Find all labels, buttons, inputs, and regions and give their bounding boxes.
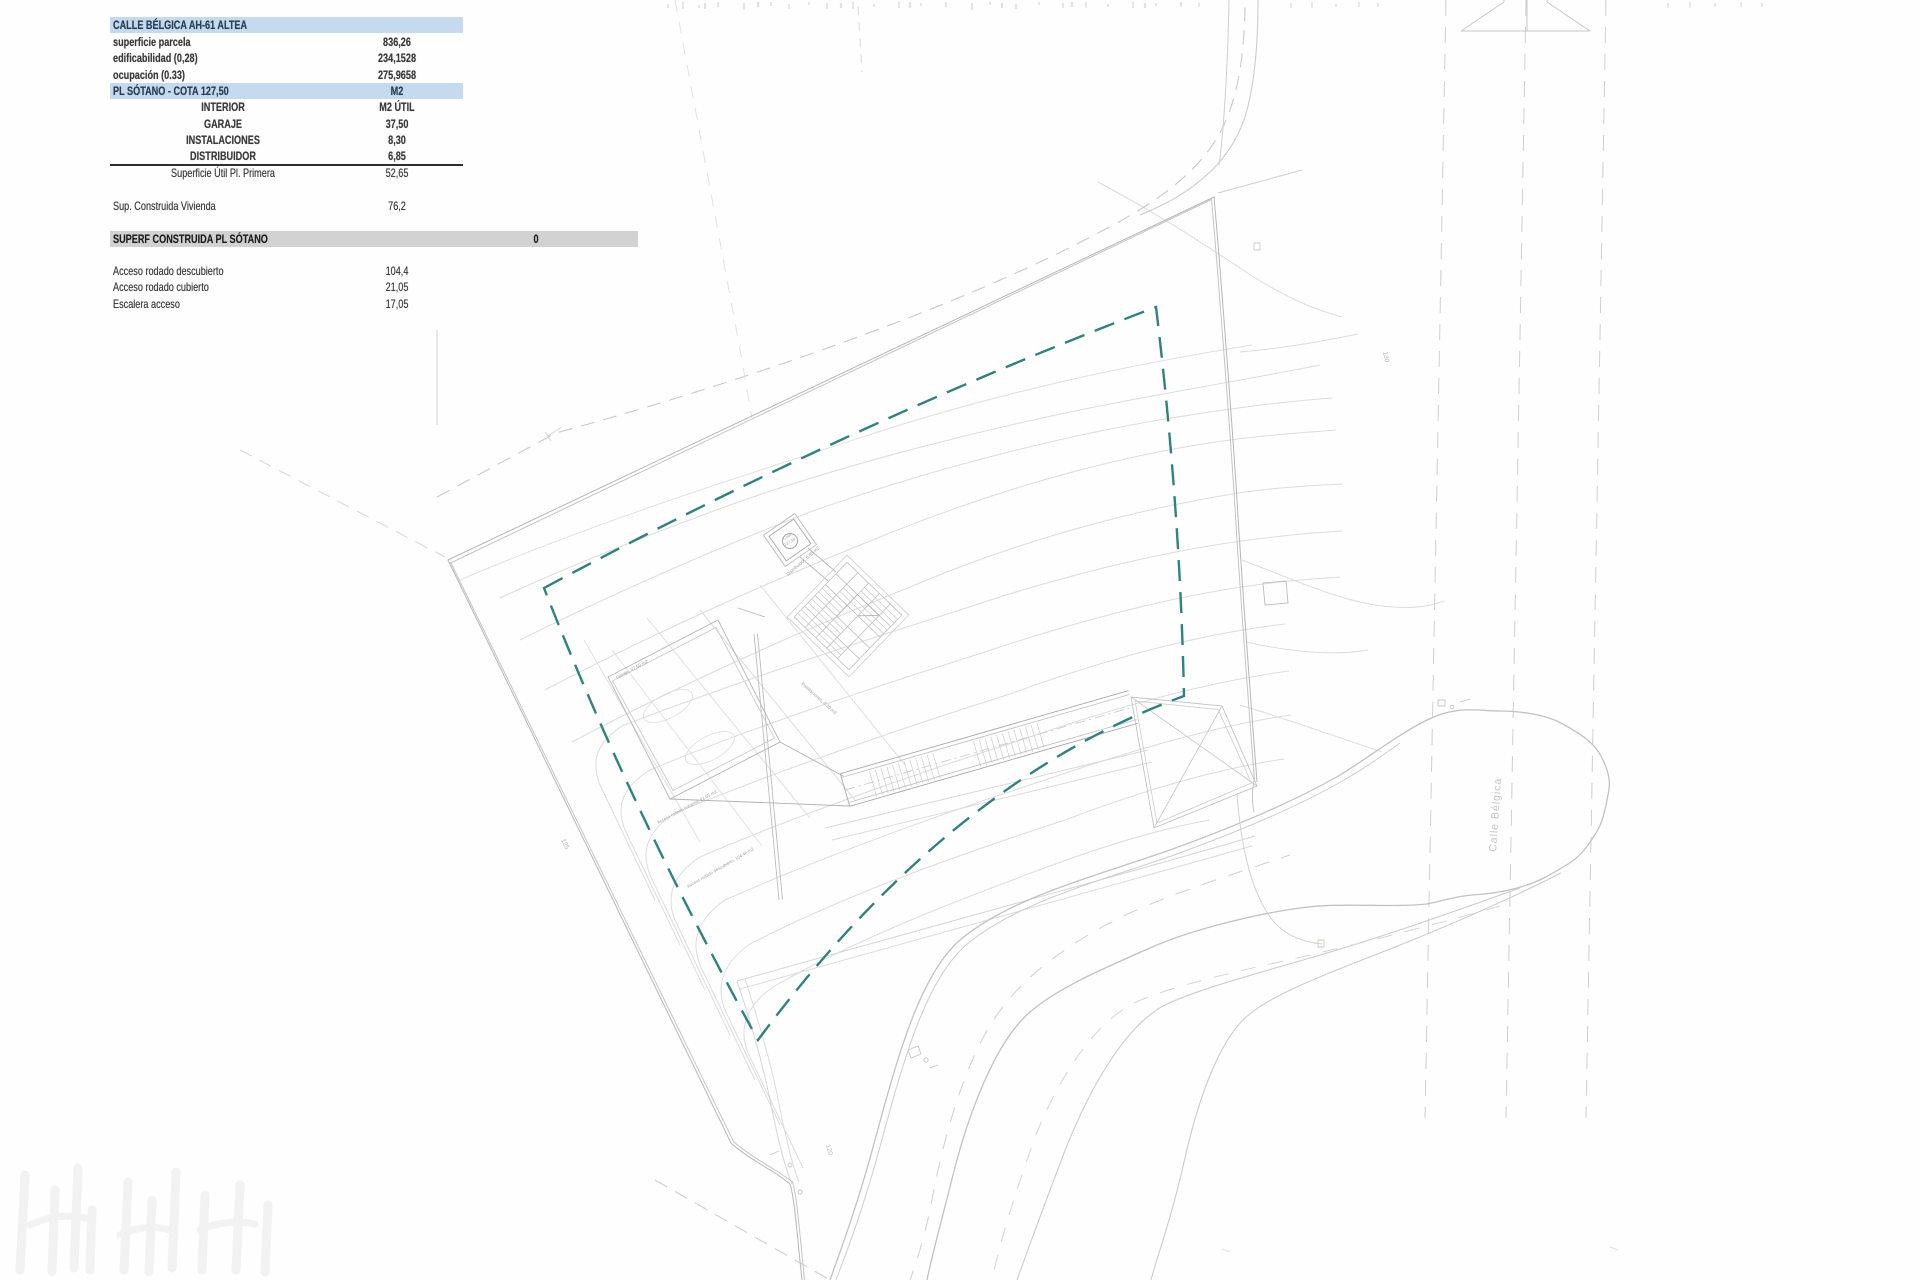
svg-text:Acceso rodado descubierto, 104: Acceso rodado descubierto, 104,40 m2 — [686, 846, 755, 889]
svg-text:Instalaciones, 8,30 m2: Instalaciones, 8,30 m2 — [800, 681, 838, 716]
svg-text:Calle Bélgica: Calle Bélgica — [1487, 777, 1504, 852]
svg-text:120: 120 — [824, 1144, 834, 1157]
svg-text:130: 130 — [1381, 351, 1390, 363]
svg-text:125: 125 — [559, 838, 570, 851]
svg-text:Distribuidor, 6,85 m2: Distribuidor, 6,85 m2 — [785, 545, 820, 577]
